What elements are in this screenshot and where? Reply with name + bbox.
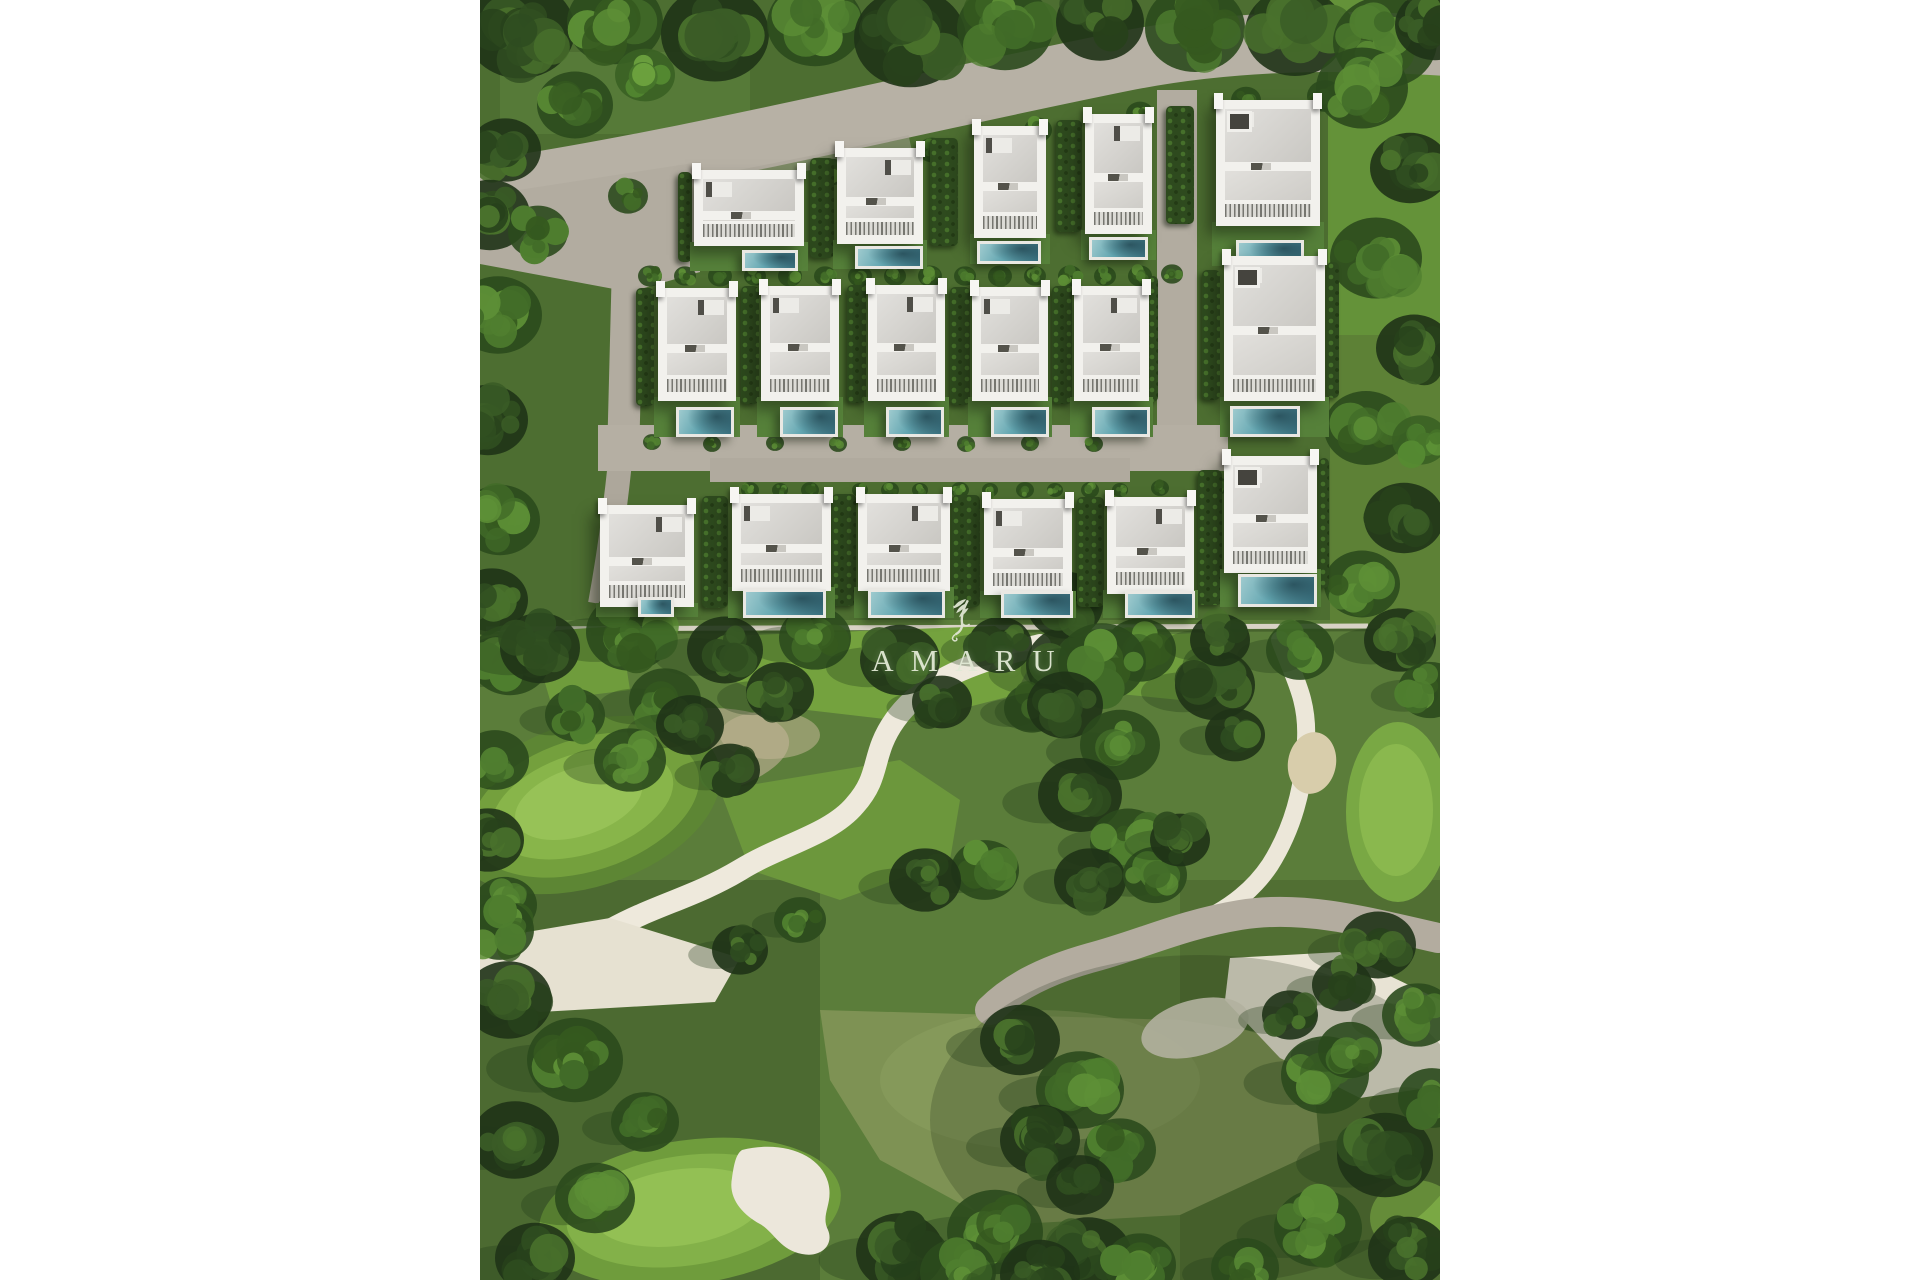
roof-louvers — [1233, 379, 1316, 392]
roof-fin — [598, 498, 607, 514]
hedge — [1056, 120, 1082, 232]
roof-fin — [692, 163, 701, 179]
rooftop-skylight — [885, 160, 911, 175]
roof-fin — [1105, 490, 1114, 506]
swimming-pool — [780, 407, 838, 437]
rooftop-skylight — [907, 297, 933, 312]
swimming-pool — [638, 597, 674, 617]
roof-fin — [656, 281, 665, 297]
skylight-wedge — [1108, 174, 1128, 181]
villa — [658, 288, 736, 401]
roof-louvers — [993, 573, 1063, 586]
roof-lower — [993, 557, 1063, 569]
roof-louvers — [867, 569, 941, 582]
hedge — [702, 496, 728, 608]
rooftop-skylight — [1111, 298, 1137, 313]
swimming-pool — [1089, 237, 1148, 260]
swimming-pool — [1238, 574, 1317, 607]
hedge — [930, 138, 958, 246]
roof-fin — [916, 141, 925, 157]
roof-fin — [759, 279, 768, 295]
skylight-wedge — [894, 344, 914, 351]
roof-fin — [943, 487, 952, 503]
skylight-wedge — [731, 212, 751, 219]
roof-fin — [970, 280, 979, 296]
skylight-wedge — [866, 198, 886, 205]
hedge — [810, 158, 834, 258]
hedge — [1202, 270, 1220, 400]
skylight-wedge — [1100, 344, 1120, 351]
roof-fin — [1222, 249, 1231, 265]
villa — [600, 505, 694, 607]
villa — [1224, 256, 1325, 401]
villa — [1074, 286, 1149, 401]
roof-louvers — [983, 216, 1037, 229]
skylight-wedge — [1258, 327, 1278, 334]
roof-fin — [856, 487, 865, 503]
swimming-pool — [1125, 591, 1195, 618]
skylight-wedge — [788, 344, 808, 351]
roof-lower — [1225, 171, 1311, 200]
swimming-pool — [1001, 591, 1073, 618]
villa — [1107, 497, 1194, 594]
skylight-wedge — [1014, 549, 1034, 556]
hedge — [950, 287, 970, 405]
roof-fin — [1310, 449, 1319, 465]
roof-lower — [981, 353, 1039, 375]
roof-louvers — [846, 222, 914, 235]
skylight-wedge — [1251, 163, 1271, 170]
roof-louvers — [981, 379, 1039, 392]
roof-fin — [1214, 93, 1223, 109]
villa — [868, 285, 945, 401]
roof-louvers — [877, 379, 936, 392]
roof-lower — [867, 553, 941, 565]
roof-lower — [667, 353, 727, 375]
roof-lower — [983, 191, 1037, 212]
roof-fin — [982, 492, 991, 508]
roof-fin — [972, 119, 981, 135]
hedge — [952, 495, 980, 607]
skylight-wedge — [998, 183, 1018, 190]
villa — [837, 148, 923, 244]
rooftop-skylight — [656, 517, 682, 532]
roof-fin — [1145, 107, 1154, 123]
skylight-wedge — [766, 545, 786, 552]
roof-lower — [1116, 556, 1185, 568]
villa — [972, 287, 1048, 401]
roof-fin — [832, 279, 841, 295]
roof-louvers — [1083, 379, 1140, 392]
roof-fin — [1083, 107, 1092, 123]
roof-fin — [797, 163, 806, 179]
villa — [732, 494, 831, 591]
skylight-wedge — [889, 545, 909, 552]
roof-louvers — [703, 224, 795, 237]
rooftop-skylight — [912, 506, 938, 521]
roof-lower — [1094, 182, 1143, 208]
roof-fin — [729, 281, 738, 297]
skylight-wedge — [632, 558, 652, 565]
roof-fin — [1187, 490, 1196, 506]
rooftop-skylight — [744, 506, 770, 521]
roof-fin — [1313, 93, 1322, 109]
roof-louvers — [1233, 551, 1308, 564]
roof-fin — [938, 278, 947, 294]
skylight-wedge — [998, 345, 1018, 352]
roof-fin — [1222, 449, 1231, 465]
swimming-pool — [886, 407, 944, 437]
roof-hatch — [1235, 267, 1260, 288]
hedge — [1077, 497, 1104, 607]
hedge — [741, 286, 759, 404]
villa — [858, 494, 950, 591]
roof-hatch — [1227, 111, 1252, 132]
roof-fin — [687, 498, 696, 514]
rooftop-skylight — [773, 298, 799, 313]
hedge — [1327, 262, 1339, 398]
roof-lower — [770, 352, 830, 375]
villa — [1085, 114, 1152, 234]
skylight-wedge — [1256, 515, 1276, 522]
villa-layer — [480, 0, 1440, 1280]
roof-louvers — [741, 569, 822, 582]
roof-lower — [741, 553, 822, 565]
hedge — [1198, 470, 1222, 605]
roof-louvers — [667, 379, 727, 392]
roof-fin — [1072, 279, 1081, 295]
roof-fin — [866, 278, 875, 294]
swimming-pool — [1230, 406, 1300, 437]
roof-louvers — [1116, 572, 1185, 585]
roof-louvers — [770, 379, 830, 392]
villa — [1224, 456, 1317, 573]
roof-fin — [1318, 249, 1327, 265]
villa — [974, 126, 1046, 238]
roof-fin — [1065, 492, 1074, 508]
skylight-wedge — [685, 345, 705, 352]
skylight-wedge — [1137, 548, 1157, 555]
rooftop-skylight — [1156, 509, 1182, 524]
roof-fin — [730, 487, 739, 503]
swimming-pool — [991, 407, 1049, 437]
roof-lower — [1233, 523, 1308, 547]
rooftop-skylight — [984, 299, 1010, 314]
roof-lower — [609, 566, 685, 581]
villa — [984, 499, 1072, 595]
roof-fin — [835, 141, 844, 157]
rooftop-skylight — [986, 138, 1012, 153]
roof-fin — [1041, 280, 1050, 296]
aerial-render: AMARU — [480, 0, 1440, 1280]
villa — [1216, 100, 1320, 226]
swimming-pool — [742, 250, 798, 271]
roof-hatch — [1235, 467, 1260, 488]
roof-fin — [1039, 119, 1048, 135]
roof-lower — [1233, 335, 1316, 375]
swimming-pool — [977, 241, 1041, 264]
roof-louvers — [1225, 204, 1311, 217]
rooftop-skylight — [996, 511, 1022, 526]
roof-fin — [824, 487, 833, 503]
hedge — [1052, 286, 1072, 404]
swimming-pool — [1092, 407, 1150, 437]
swimming-pool — [743, 589, 826, 618]
hedge — [1166, 106, 1194, 224]
roof-fin — [1142, 279, 1151, 295]
rooftop-skylight — [1114, 126, 1140, 141]
hedge — [636, 288, 654, 406]
roof-lower — [877, 352, 936, 375]
swimming-pool — [868, 589, 945, 618]
roof-lower — [846, 206, 914, 218]
hedge — [832, 494, 856, 606]
rooftop-skylight — [706, 182, 732, 197]
villa — [761, 286, 839, 401]
swimming-pool — [855, 246, 923, 269]
hedge — [847, 285, 866, 403]
villa — [694, 170, 804, 246]
roof-lower — [1083, 352, 1140, 375]
rooftop-skylight — [698, 300, 724, 315]
swimming-pool — [676, 407, 734, 437]
roof-louvers — [1094, 212, 1143, 225]
page-canvas: AMARU — [0, 0, 1920, 1280]
